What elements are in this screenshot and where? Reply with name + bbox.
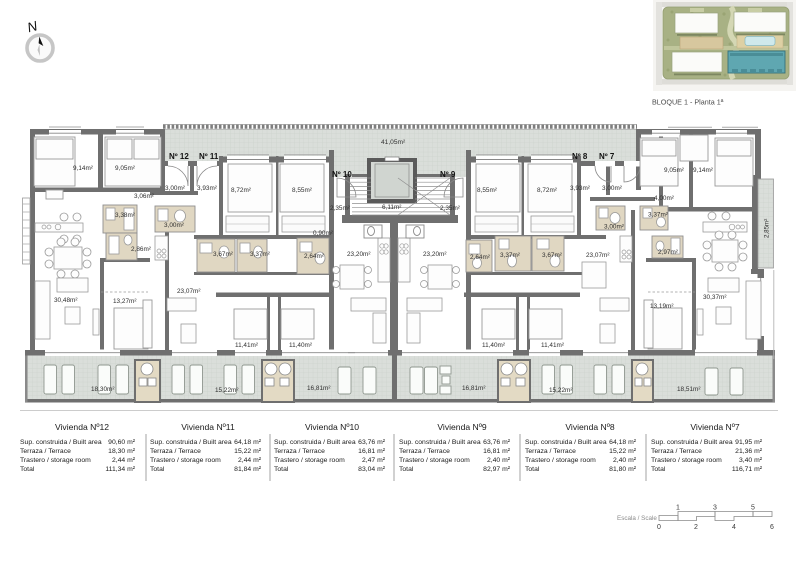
svg-text:Escala / Scale: Escala / Scale	[617, 515, 657, 522]
svg-text:13,27m²: 13,27m²	[113, 298, 136, 305]
svg-text:9,05m²: 9,05m²	[115, 165, 135, 172]
svg-text:N: N	[26, 18, 40, 35]
svg-text:2,35m²: 2,35m²	[330, 205, 350, 212]
svg-text:30,37m²: 30,37m²	[703, 294, 726, 301]
svg-text:Nº 11: Nº 11	[199, 152, 219, 161]
svg-text:23,20m²: 23,20m²	[347, 251, 370, 258]
svg-text:63,76 m²: 63,76 m²	[483, 439, 511, 446]
svg-text:111,34 m²: 111,34 m²	[105, 466, 135, 473]
svg-text:3,00m²: 3,00m²	[602, 185, 622, 192]
svg-text:8,72m²: 8,72m²	[231, 187, 251, 194]
svg-text:2: 2	[694, 524, 698, 531]
svg-text:Nº 12: Nº 12	[169, 152, 189, 161]
svg-text:15,22m²: 15,22m²	[549, 387, 572, 394]
svg-text:2,44 m²: 2,44 m²	[238, 457, 262, 464]
svg-text:11,40m²: 11,40m²	[289, 342, 312, 349]
svg-text:Terraza / Terrace: Terraza / Terrace	[399, 448, 450, 455]
svg-text:2,86m²: 2,86m²	[131, 246, 151, 253]
svg-text:2,47 m²: 2,47 m²	[362, 457, 386, 464]
svg-text:3,38m²: 3,38m²	[115, 212, 135, 219]
svg-text:3,40 m²: 3,40 m²	[739, 457, 763, 464]
svg-text:0,90m²: 0,90m²	[313, 230, 333, 237]
svg-text:BLOQUE 1 - Planta 1ª: BLOQUE 1 - Planta 1ª	[652, 98, 724, 107]
svg-text:16,81m²: 16,81m²	[307, 385, 330, 392]
svg-text:8,55m²: 8,55m²	[477, 187, 497, 194]
svg-text:Trastero / storage room: Trastero / storage room	[399, 457, 470, 464]
svg-text:8,55m²: 8,55m²	[292, 187, 312, 194]
svg-text:9,14m²: 9,14m²	[693, 167, 713, 174]
svg-text:15,22 m²: 15,22 m²	[234, 448, 262, 455]
svg-text:3,37m²: 3,37m²	[250, 251, 270, 258]
svg-text:21,36 m²: 21,36 m²	[735, 448, 763, 455]
svg-text:3,37m²: 3,37m²	[648, 212, 668, 219]
svg-text:Terraza / Terrace: Terraza / Terrace	[20, 448, 71, 455]
svg-text:3,93m²: 3,93m²	[570, 185, 590, 192]
svg-text:63,76 m²: 63,76 m²	[358, 439, 386, 446]
svg-text:3,00m²: 3,00m²	[604, 224, 624, 231]
svg-text:Sup. construida / Built area: Sup. construida / Built area	[651, 439, 733, 446]
svg-text:Trastero / storage room: Trastero / storage room	[525, 457, 596, 464]
svg-text:6: 6	[770, 524, 774, 531]
svg-text:13,19m²: 13,19m²	[650, 303, 673, 310]
svg-text:Total: Total	[20, 466, 35, 473]
svg-text:2,64m²: 2,64m²	[304, 253, 324, 260]
svg-text:2,64m²: 2,64m²	[470, 254, 490, 261]
svg-text:Total: Total	[274, 466, 289, 473]
svg-text:2,40 m²: 2,40 m²	[613, 457, 637, 464]
svg-text:Terraza / Terrace: Terraza / Terrace	[525, 448, 576, 455]
svg-text:3,37m²: 3,37m²	[500, 252, 520, 259]
svg-text:5: 5	[751, 505, 755, 512]
svg-text:16,81m²: 16,81m²	[462, 385, 485, 392]
svg-text:Terraza / Terrace: Terraza / Terrace	[150, 448, 201, 455]
svg-text:116,71 m²: 116,71 m²	[732, 466, 763, 473]
svg-text:23,07m²: 23,07m²	[177, 288, 200, 295]
svg-text:Vivienda Nº9: Vivienda Nº9	[437, 422, 487, 432]
svg-text:3,93m²: 3,93m²	[197, 185, 217, 192]
svg-text:Sup. construida / Built area: Sup. construida / Built area	[274, 439, 356, 446]
svg-text:2,40 m²: 2,40 m²	[487, 457, 511, 464]
svg-text:23,20m²: 23,20m²	[423, 251, 446, 258]
svg-text:18,51m²: 18,51m²	[677, 386, 700, 393]
svg-text:82,97 m²: 82,97 m²	[483, 466, 511, 473]
svg-text:4,00m²: 4,00m²	[654, 195, 674, 202]
svg-text:0: 0	[657, 524, 661, 531]
svg-text:Trastero / storage room: Trastero / storage room	[651, 457, 722, 464]
svg-text:41,05m²: 41,05m²	[381, 139, 406, 146]
svg-text:3,00m²: 3,00m²	[165, 185, 185, 192]
svg-text:30,48m²: 30,48m²	[54, 297, 77, 304]
svg-text:83,04 m²: 83,04 m²	[358, 466, 386, 473]
svg-text:3,67m²: 3,67m²	[542, 252, 562, 259]
svg-text:15,22 m²: 15,22 m²	[609, 448, 637, 455]
svg-text:Nº 9: Nº 9	[440, 170, 456, 179]
svg-text:8,72m²: 8,72m²	[537, 187, 557, 194]
svg-text:Total: Total	[651, 466, 666, 473]
svg-text:16,81 m²: 16,81 m²	[483, 448, 511, 455]
svg-text:Nº 7: Nº 7	[599, 152, 615, 161]
svg-text:Nº 8: Nº 8	[572, 152, 588, 161]
svg-text:Nº 10: Nº 10	[332, 170, 352, 179]
svg-text:16,81 m²: 16,81 m²	[358, 448, 386, 455]
svg-text:64,18 m²: 64,18 m²	[234, 439, 262, 446]
svg-text:2,44 m²: 2,44 m²	[112, 457, 136, 464]
svg-text:Vivienda Nº7: Vivienda Nº7	[690, 422, 740, 432]
svg-text:2,35m²: 2,35m²	[440, 205, 460, 212]
svg-text:Terraza / Terrace: Terraza / Terrace	[274, 448, 325, 455]
svg-text:Vivienda Nº8: Vivienda Nº8	[565, 422, 615, 432]
svg-text:23,07m²: 23,07m²	[586, 252, 609, 259]
svg-text:18,30m²: 18,30m²	[91, 386, 114, 393]
svg-text:4: 4	[732, 524, 736, 531]
svg-text:Vivienda Nº10: Vivienda Nº10	[305, 422, 359, 432]
svg-text:9,05m²: 9,05m²	[664, 167, 684, 174]
svg-text:11,40m²: 11,40m²	[482, 342, 505, 349]
svg-text:2,85m²: 2,85m²	[764, 219, 771, 238]
svg-text:Total: Total	[525, 466, 540, 473]
svg-text:3,06m²: 3,06m²	[134, 193, 154, 200]
svg-text:2,97m²: 2,97m²	[658, 249, 678, 256]
svg-text:91,95 m²: 91,95 m²	[735, 439, 763, 446]
svg-text:11,41m²: 11,41m²	[541, 342, 564, 349]
svg-text:11,41m²: 11,41m²	[235, 342, 258, 349]
svg-text:Vivienda Nº11: Vivienda Nº11	[181, 422, 235, 432]
svg-text:6,11m²: 6,11m²	[382, 204, 401, 211]
svg-text:Terraza / Terrace: Terraza / Terrace	[651, 448, 702, 455]
svg-text:Trastero / storage room: Trastero / storage room	[20, 457, 91, 464]
svg-text:18,30 m²: 18,30 m²	[108, 448, 136, 455]
svg-text:64,18 m²: 64,18 m²	[609, 439, 637, 446]
svg-text:3,67m²: 3,67m²	[213, 251, 233, 258]
svg-text:Sup. construida / Built area: Sup. construida / Built area	[20, 439, 102, 446]
svg-text:Vivienda Nº12: Vivienda Nº12	[55, 422, 109, 432]
svg-text:Sup. construida / Built area: Sup. construida / Built area	[399, 439, 481, 446]
svg-text:Sup. construida / Built area: Sup. construida / Built area	[525, 439, 607, 446]
svg-text:Sup. construida / Built area: Sup. construida / Built area	[150, 439, 232, 446]
svg-text:Total: Total	[399, 466, 414, 473]
svg-text:9,14m²: 9,14m²	[73, 165, 93, 172]
svg-text:Total: Total	[150, 466, 165, 473]
svg-text:Trastero / storage room: Trastero / storage room	[274, 457, 345, 464]
svg-text:81,84 m²: 81,84 m²	[234, 466, 262, 473]
svg-text:81,80 m²: 81,80 m²	[609, 466, 637, 473]
svg-text:Trastero / storage room: Trastero / storage room	[150, 457, 221, 464]
svg-text:3,00m²: 3,00m²	[164, 222, 184, 229]
svg-text:90,60 m²: 90,60 m²	[108, 439, 136, 446]
svg-text:15,22m²: 15,22m²	[215, 387, 238, 394]
svg-text:3: 3	[713, 505, 717, 512]
svg-text:1: 1	[676, 505, 680, 512]
